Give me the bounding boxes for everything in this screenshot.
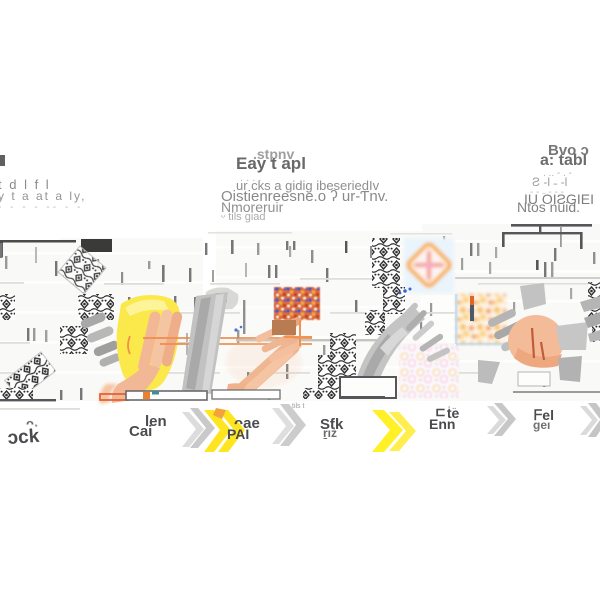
svg-text:Enn: Enn [429, 416, 455, 432]
svg-text:Cai: Cai [129, 423, 152, 440]
svg-text:a: tabl: a: tabl [540, 152, 587, 169]
svg-text:ɡeı: ɡeı [533, 418, 550, 432]
svg-text:ᴖ˕: ᴖ˕ [26, 416, 38, 431]
svg-text:tils t: tils t [292, 403, 305, 410]
svg-text:ṟıż: ṟıż [323, 426, 337, 440]
svg-text:PAI: PAI [227, 426, 249, 442]
svg-text:Ntos nuid.: Ntos nuid. [517, 199, 580, 215]
svg-text:y t a at a ly,: y t a at a ly, [0, 189, 86, 203]
svg-text:- - - - -- - -: - - - - -- - - [0, 202, 83, 213]
svg-text:Eay t apl: Eay t apl [236, 154, 306, 173]
svg-text:ᵕ tils giad: ᵕ tils giad [221, 211, 266, 223]
